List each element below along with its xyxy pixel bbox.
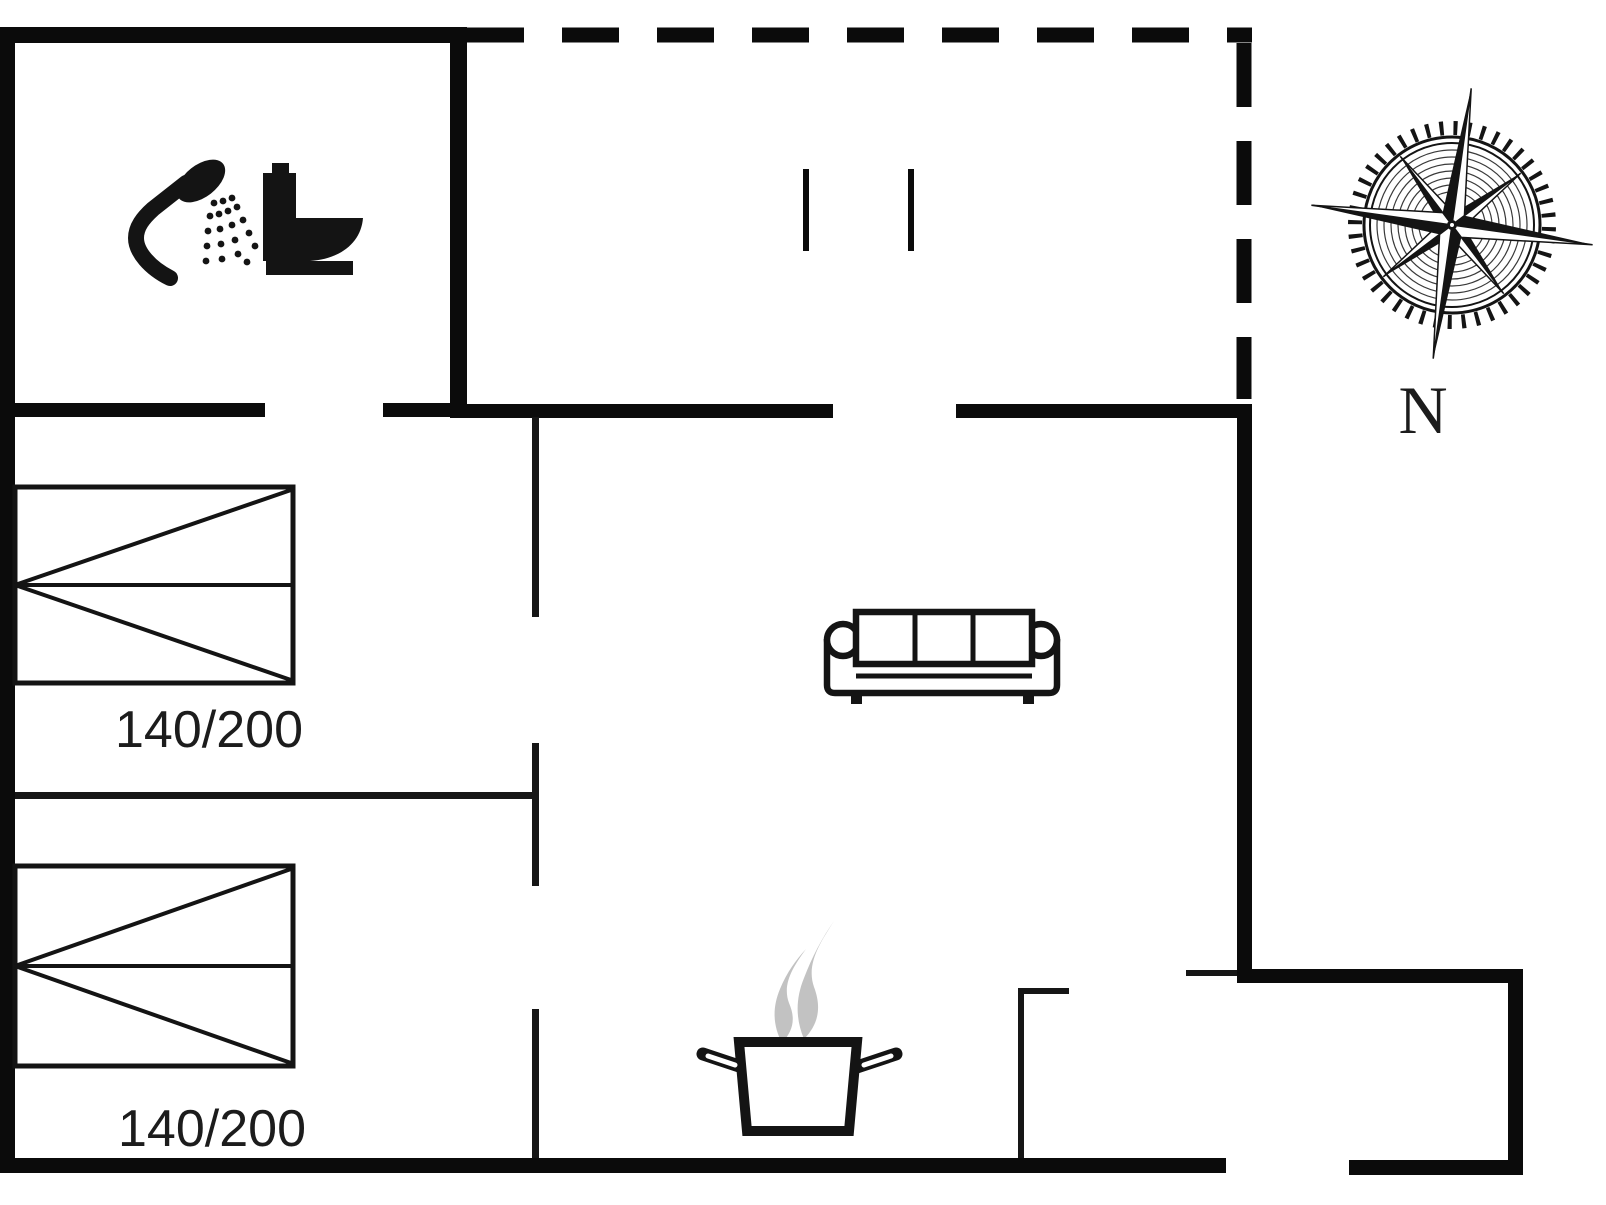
wall-bottom-main — [0, 1158, 1226, 1173]
wall-kitchen-vertical — [1018, 988, 1024, 1158]
sofa-cushions — [856, 612, 1032, 664]
wall-kitchen-stub — [1018, 988, 1069, 994]
bed1-size-label: 140/200 — [115, 701, 303, 759]
terrace-door-mark-left — [803, 169, 809, 251]
compass-north-label: N — [1398, 372, 1447, 448]
wall-bathroom-top — [0, 27, 467, 43]
compass-rose — [1293, 69, 1606, 379]
wall-living-top — [956, 404, 1252, 418]
bed2-size-label: 140/200 — [118, 1100, 306, 1158]
toilet-base-icon — [266, 261, 353, 275]
wall-annex-right — [1508, 969, 1523, 1175]
wall-hall-lower — [532, 1009, 539, 1158]
wall-hall-middle — [532, 743, 539, 886]
pot-body — [739, 1042, 857, 1131]
wall-bottom-annex — [1349, 1160, 1523, 1175]
wall-bathroom-bottom-a — [15, 403, 265, 417]
wall-living-right — [1237, 404, 1252, 983]
floor-plan-page: 140/200 140/200 N — [0, 0, 1606, 1205]
wall-annex-stub — [1186, 970, 1237, 976]
terrace-door-mark-right — [908, 169, 914, 251]
wall-hall-upper — [532, 417, 539, 617]
floor-plan-svg: 140/200 140/200 N — [0, 0, 1606, 1205]
toilet-bowl-icon — [263, 218, 363, 261]
wall-bedroom-divider — [15, 792, 535, 799]
wall-bathroom-bottom-b — [383, 403, 450, 417]
plan-layer — [0, 27, 1523, 1175]
shower-spray-dots — [203, 195, 259, 266]
wall-bathroom-right — [450, 27, 467, 418]
steam-wisp-right — [798, 921, 834, 1039]
wall-hall-top — [467, 404, 833, 418]
wall-annex-top — [1237, 969, 1523, 983]
